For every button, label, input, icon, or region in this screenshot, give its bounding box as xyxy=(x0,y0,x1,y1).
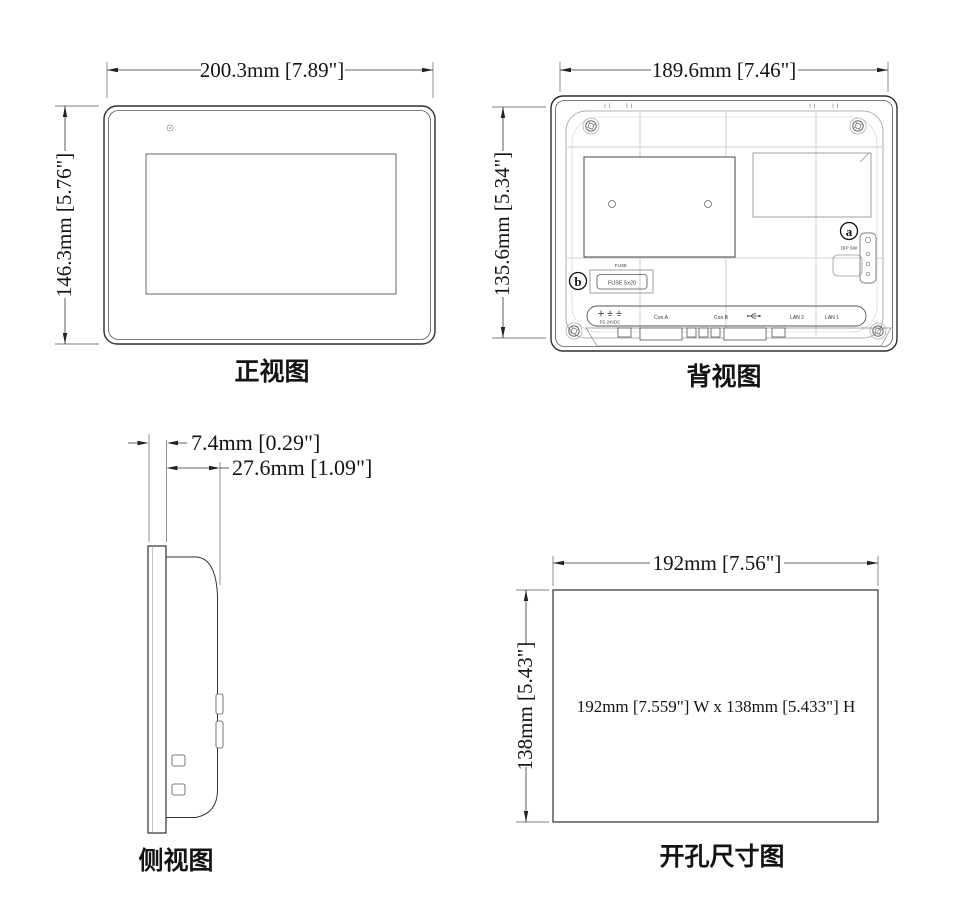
front-panel-inner-line xyxy=(109,111,431,340)
corner-notch xyxy=(860,153,869,162)
side-depth-dimension: 27.6mm [1.09"] xyxy=(167,455,373,585)
power-terminal-icon xyxy=(598,311,622,317)
arrowhead xyxy=(63,333,67,344)
front-height-dimension: 146.3mm [5.76"] xyxy=(52,106,99,344)
arrowhead xyxy=(63,106,67,117)
cutout-view: 192mm [7.56"] 138mm [5.43"] 192mm [7.559… xyxy=(513,551,878,871)
arrowhead xyxy=(524,811,528,822)
mounting-clip xyxy=(216,721,223,748)
screw-icon xyxy=(583,118,599,134)
arrowhead xyxy=(553,561,564,565)
arrowhead xyxy=(501,327,505,338)
arrowhead xyxy=(107,68,118,72)
port-label-com-b: Con.B xyxy=(714,315,729,321)
drawing-svg: 200.3mm [7.89"] 146.3mm [5.76"] 正视图 xyxy=(0,0,956,910)
back-height-dimension: 135.6mm [5.34"] xyxy=(490,107,546,338)
usb-arrow xyxy=(759,315,762,318)
dip-sw-label: DIP SW xyxy=(841,246,858,251)
arrowhead xyxy=(209,466,220,470)
dimension-drawing: 200.3mm [7.89"] 146.3mm [5.76"] 正视图 xyxy=(0,0,956,910)
arrowhead xyxy=(877,68,888,72)
arrowhead xyxy=(867,561,878,565)
back-view: 189.6mm [7.46"] 135.6mm [5.34"] xyxy=(490,58,897,391)
mounting-clip xyxy=(216,694,223,714)
power-label: FG 24VDC xyxy=(600,320,620,325)
ground-symbol xyxy=(617,311,622,316)
cutout-height-dim-text: 138mm [5.43"] xyxy=(513,642,537,771)
cutout-width-dimension: 192mm [7.56"] xyxy=(553,551,878,586)
arrowhead xyxy=(422,68,433,72)
screw-icon xyxy=(566,323,582,339)
side-profile xyxy=(148,546,223,833)
arrowhead xyxy=(560,68,571,72)
back-panel: a DIP SW b FUSE FUSE 5x20 FG 24VDC Con xyxy=(551,96,897,351)
callout-a-letter: a xyxy=(846,224,853,239)
front-width-dim-text: 200.3mm [7.89"] xyxy=(200,58,344,82)
port-label-lan1: LAN 1 xyxy=(825,315,839,321)
side-depth-dim-text: 27.6mm [1.09"] xyxy=(232,455,372,480)
connector-cutout xyxy=(699,328,708,337)
back-height-dim-text: 135.6mm [5.34"] xyxy=(490,152,514,296)
side-view: 7.4mm [0.29"] 27.6mm [1.09"] 侧视图 xyxy=(128,430,372,875)
arrowhead xyxy=(501,107,505,118)
front-panel xyxy=(104,106,435,344)
usb-icon xyxy=(747,314,762,318)
cutout-view-label: 开孔尺寸图 xyxy=(659,843,784,871)
connector-cutout xyxy=(640,328,682,340)
side-body xyxy=(166,557,218,818)
side-bezel-dimension: 7.4mm [0.29"] xyxy=(128,430,320,542)
vent-ticks xyxy=(605,104,838,109)
cutout-width-dim-text: 192mm [7.56"] xyxy=(653,551,782,575)
arrowhead xyxy=(167,441,178,445)
screw-icon xyxy=(850,118,866,134)
connector-cutout xyxy=(772,328,785,337)
front-screen xyxy=(146,154,396,294)
mounting-slot xyxy=(172,755,185,766)
right-compartment xyxy=(753,153,871,217)
arrowhead xyxy=(138,441,149,445)
fuse-value: FUSE 5x20 xyxy=(608,281,636,287)
front-height-dim-text: 146.3mm [5.76"] xyxy=(52,153,76,297)
cutout-height-dimension: 138mm [5.43"] xyxy=(513,590,549,822)
front-width-dimension: 200.3mm [7.89"] xyxy=(107,58,433,98)
plus-symbol xyxy=(598,311,604,317)
cutout-note: 192mm [7.559"] W x 138mm [5.433"] H xyxy=(577,697,856,716)
port-label-lan2: LAN 2 xyxy=(790,315,804,321)
mounting-slot xyxy=(172,784,185,795)
front-view-label: 正视图 xyxy=(234,358,309,386)
front-panel-outline xyxy=(104,106,435,344)
fuse-caption: FUSE xyxy=(615,263,627,268)
back-width-dimension: 189.6mm [7.46"] xyxy=(560,58,888,92)
arrowhead xyxy=(167,466,178,470)
back-view-label: 背视图 xyxy=(686,363,761,391)
mounting-plate xyxy=(584,157,735,257)
side-view-label: 侧视图 xyxy=(138,846,213,875)
side-bezel-dim-text: 7.4mm [0.29"] xyxy=(191,430,320,455)
led-indicator-dot xyxy=(169,127,171,129)
connector-cutout xyxy=(618,328,631,337)
port-label-com-a: Con.A xyxy=(654,315,669,321)
back-width-dim-text: 189.6mm [7.46"] xyxy=(652,58,796,82)
front-view: 200.3mm [7.89"] 146.3mm [5.76"] 正视图 xyxy=(52,58,435,386)
callout-b-letter: b xyxy=(574,274,581,289)
connector-cutout xyxy=(687,328,696,337)
connector-cutout xyxy=(711,328,720,337)
side-bezel xyxy=(148,546,166,833)
arrowhead xyxy=(524,590,528,601)
connector-cutout xyxy=(724,328,766,340)
ground-symbol xyxy=(608,311,613,316)
